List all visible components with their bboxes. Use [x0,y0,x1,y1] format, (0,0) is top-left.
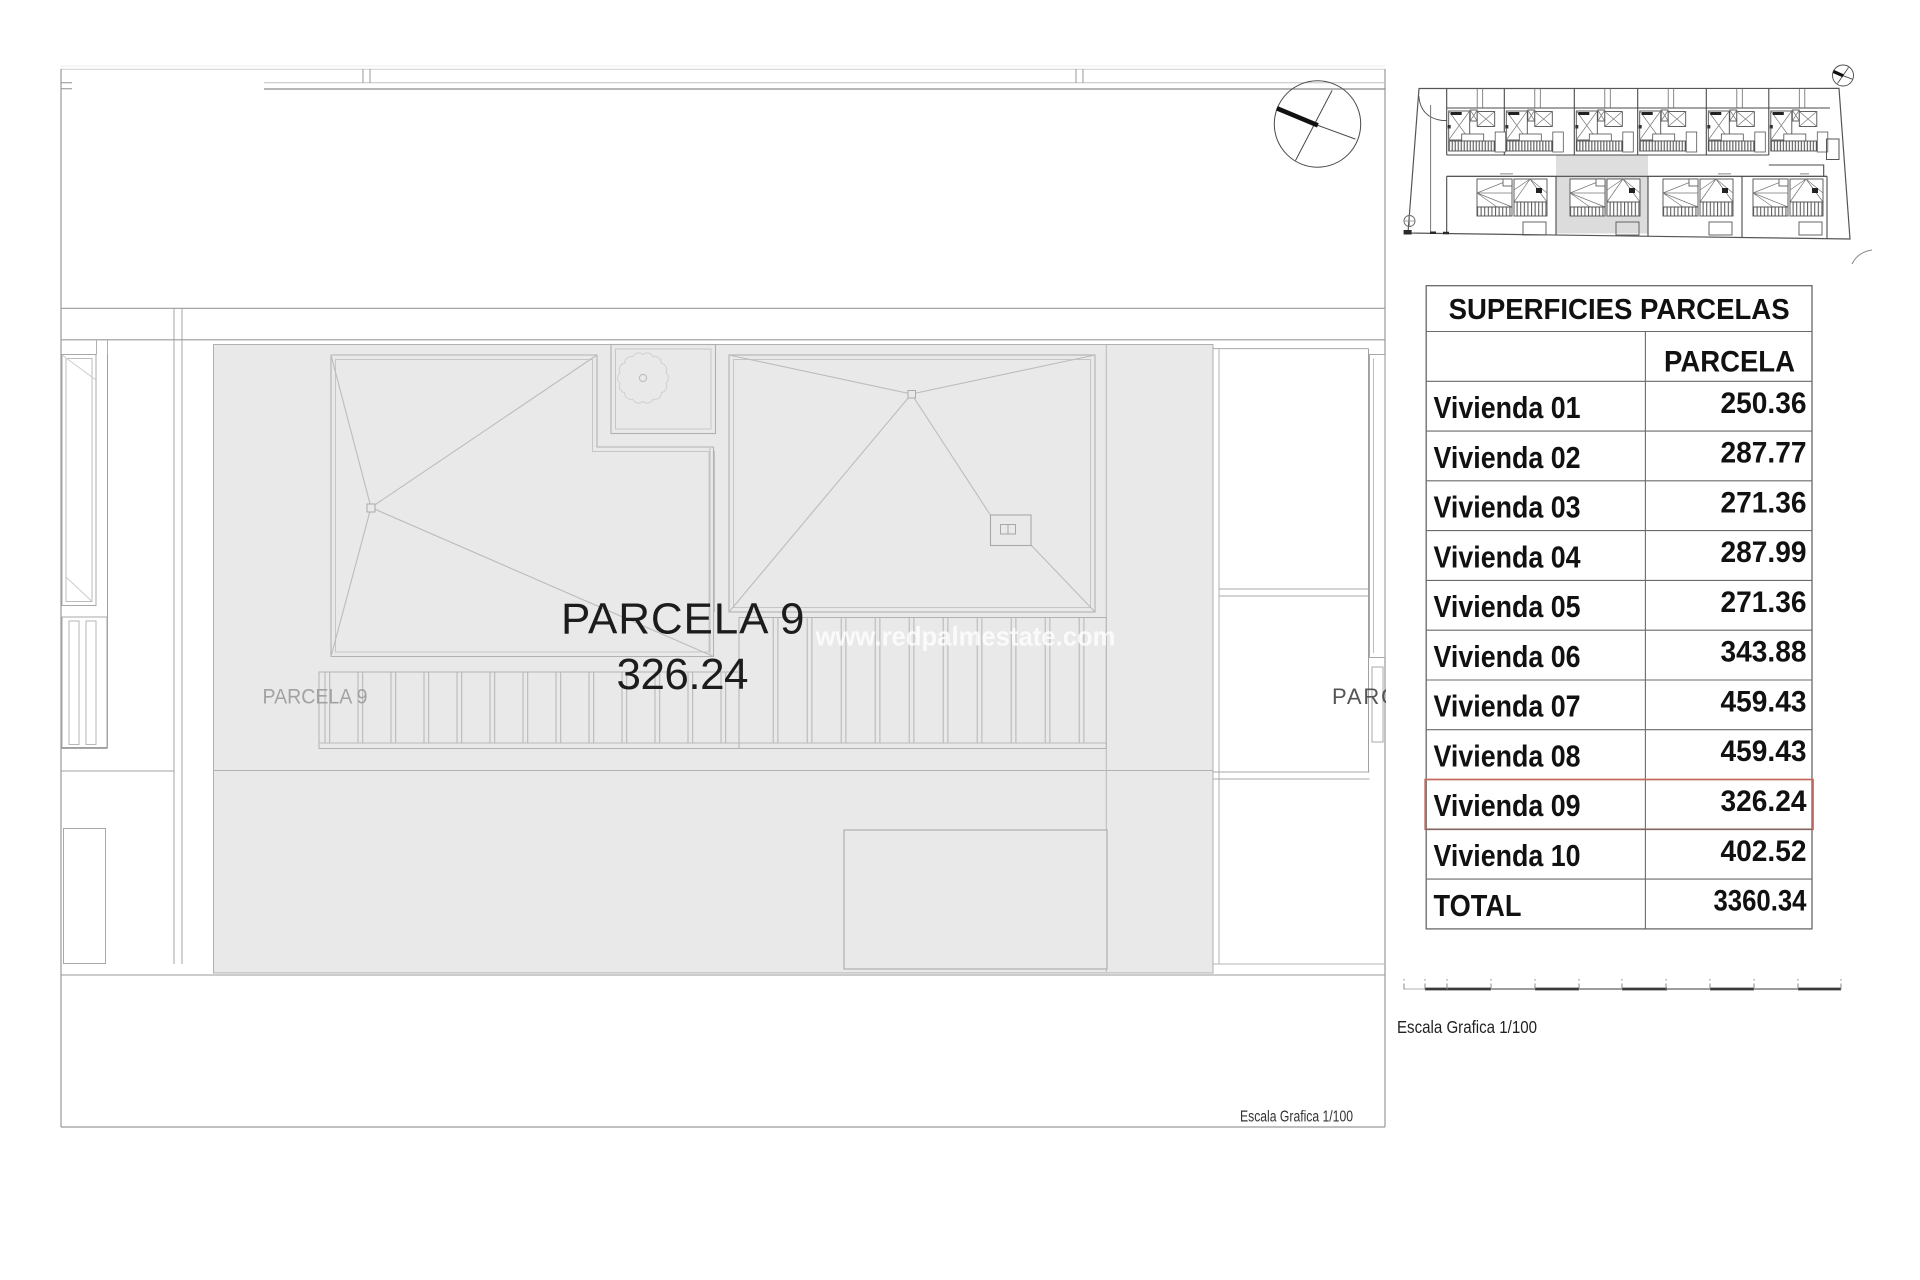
svg-text:Vivienda 03: Vivienda 03 [1434,490,1581,525]
svg-text:287.99: 287.99 [1721,536,1807,569]
svg-text:271.36: 271.36 [1721,586,1807,619]
svg-text:Escala Grafica 1/100: Escala Grafica 1/100 [1397,1017,1537,1037]
svg-text:326.24: 326.24 [617,650,749,699]
svg-text:Vivienda 02: Vivienda 02 [1434,440,1581,475]
svg-text:3360.34: 3360.34 [1714,885,1807,918]
svg-text:Vivienda 05: Vivienda 05 [1434,589,1581,624]
svg-text:250.36: 250.36 [1721,387,1807,420]
svg-text:343.88: 343.88 [1721,636,1807,669]
svg-text:287.77: 287.77 [1721,437,1807,470]
svg-text:402.52: 402.52 [1721,835,1807,868]
svg-text:459.43: 459.43 [1721,686,1807,719]
svg-text:271.36: 271.36 [1721,486,1807,519]
svg-text:www.redpalmestate.com: www.redpalmestate.com [815,622,1116,652]
svg-text:Vivienda 08: Vivienda 08 [1434,738,1581,773]
svg-text:Escala Grafica 1/100: Escala Grafica 1/100 [1240,1109,1353,1126]
svg-text:Vivienda 07: Vivienda 07 [1434,689,1581,724]
svg-text:Vivienda 09: Vivienda 09 [1434,788,1581,823]
svg-text:Vivienda 04: Vivienda 04 [1434,539,1582,574]
svg-text:PARCELA 9: PARCELA 9 [263,684,368,708]
svg-text:TOTAL: TOTAL [1434,888,1522,923]
svg-text:PARCELA 9: PARCELA 9 [561,595,805,644]
svg-text:PARCELA: PARCELA [1664,346,1795,379]
svg-text:Vivienda 10: Vivienda 10 [1434,838,1581,873]
svg-text:Vivienda 06: Vivienda 06 [1434,639,1581,674]
svg-text:Vivienda 01: Vivienda 01 [1434,390,1581,425]
svg-text:326.24: 326.24 [1721,785,1807,818]
svg-text:SUPERFICIES PARCELAS: SUPERFICIES PARCELAS [1449,294,1790,326]
svg-text:459.43: 459.43 [1721,735,1807,768]
